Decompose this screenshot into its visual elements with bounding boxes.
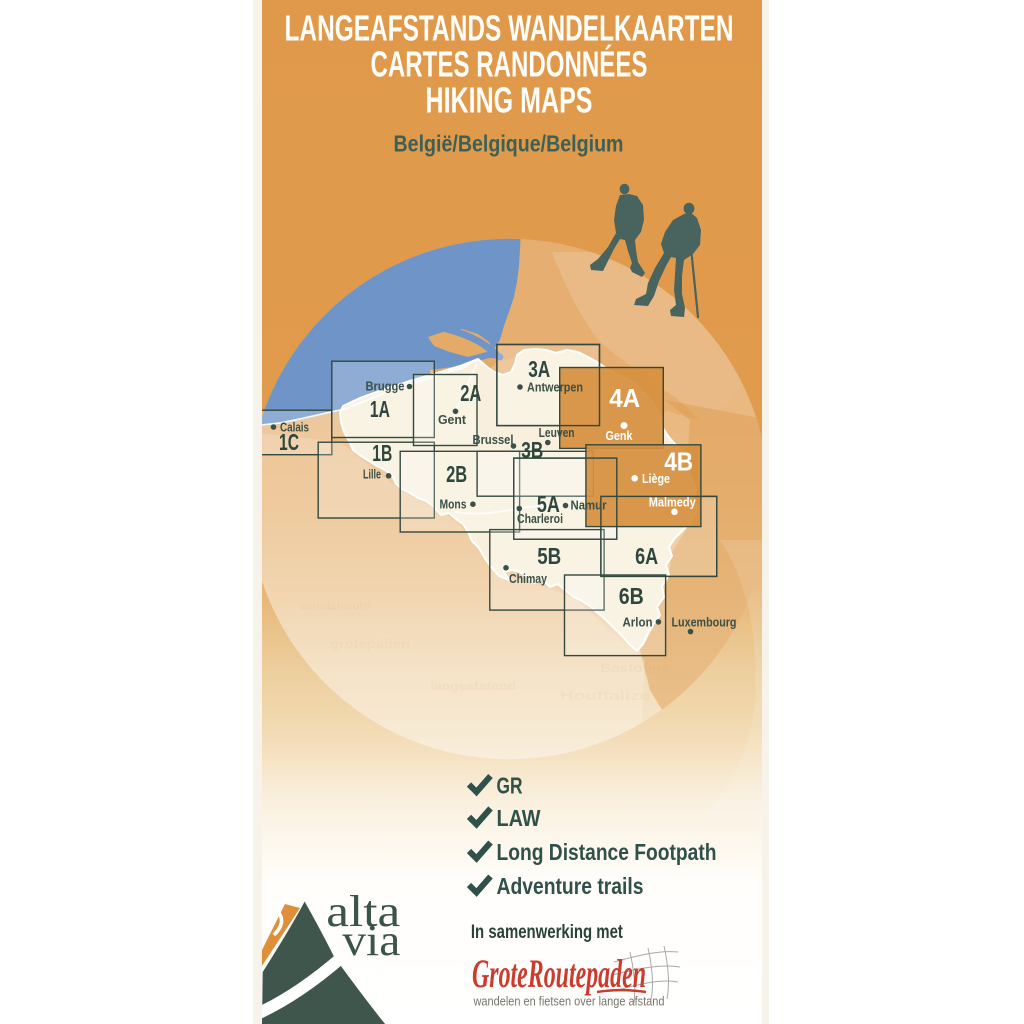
svg-text:HIKING MAPS: HIKING MAPS	[426, 79, 593, 120]
svg-text:6A: 6A	[635, 543, 658, 569]
svg-text:2B: 2B	[446, 461, 467, 487]
svg-text:4A: 4A	[609, 383, 640, 413]
svg-text:Leuven: Leuven	[539, 425, 575, 440]
svg-text:3A: 3A	[528, 356, 550, 382]
svg-text:Arlon: Arlon	[623, 615, 653, 630]
svg-text:Adventure trails: Adventure trails	[497, 873, 644, 899]
svg-text:Malmedy: Malmedy	[649, 495, 697, 510]
svg-text:Antwerpen: Antwerpen	[527, 380, 583, 395]
svg-text:Liège: Liège	[642, 471, 670, 486]
svg-text:Calais: Calais	[280, 420, 309, 435]
svg-text:Gent: Gent	[438, 412, 467, 427]
svg-text:wandelen en fietsen over lange: wandelen en fietsen over lange afstand	[473, 995, 665, 1009]
svg-text:LAW: LAW	[497, 805, 542, 831]
svg-text:Lille: Lille	[363, 467, 381, 482]
svg-text:Brugge: Brugge	[366, 379, 405, 394]
svg-text:GR: GR	[497, 773, 523, 799]
svg-text:wandelroute: wandelroute	[299, 599, 370, 613]
svg-text:LANGEAFSTANDS WANDELKAARTEN: LANGEAFSTANDS WANDELKAARTEN	[285, 7, 734, 48]
svg-text:Namur: Namur	[571, 498, 607, 513]
svg-text:via: via	[342, 916, 400, 965]
svg-text:5B: 5B	[537, 543, 561, 569]
svg-text:3B: 3B	[521, 437, 543, 463]
svg-text:Brussel: Brussel	[473, 432, 514, 447]
svg-text:In samenwerking met: In samenwerking met	[471, 921, 623, 943]
svg-text:België/Belgique/Belgium: België/Belgique/Belgium	[394, 131, 624, 157]
svg-text:Long Distance Footpath: Long Distance Footpath	[497, 839, 717, 865]
svg-text:Luxembourg: Luxembourg	[672, 615, 737, 630]
svg-text:CARTES RANDONNÉES: CARTES RANDONNÉES	[371, 43, 648, 84]
svg-text:1B: 1B	[372, 440, 392, 466]
svg-text:Mons: Mons	[440, 497, 467, 512]
svg-text:2A: 2A	[460, 380, 481, 406]
svg-text:6B: 6B	[619, 583, 644, 609]
svg-text:Chimay: Chimay	[509, 571, 548, 586]
svg-text:grotepaden: grotepaden	[330, 637, 410, 651]
svg-text:Charleroi: Charleroi	[517, 511, 563, 526]
svg-text:Houffalize: Houffalize	[560, 688, 650, 703]
svg-text:Genk: Genk	[606, 428, 634, 443]
svg-text:Bastogne: Bastogne	[600, 661, 670, 675]
svg-text:langeafstand: langeafstand	[430, 679, 516, 693]
svg-text:1A: 1A	[370, 396, 390, 422]
